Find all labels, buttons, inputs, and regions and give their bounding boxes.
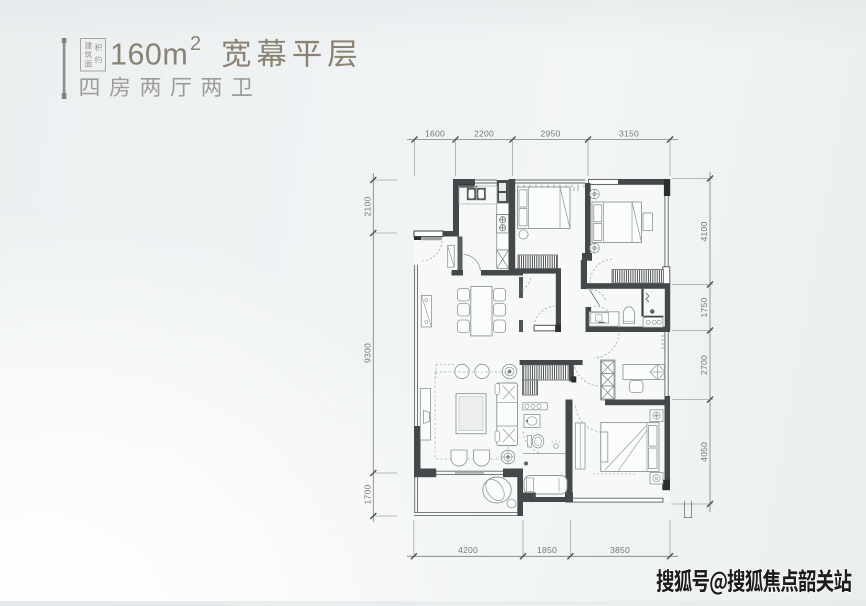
svg-text:1850: 1850: [537, 545, 557, 555]
svg-text:2950: 2950: [541, 129, 561, 139]
svg-text:3150: 3150: [619, 129, 639, 139]
svg-text:3850: 3850: [610, 545, 630, 555]
svg-text:2700: 2700: [699, 355, 709, 375]
svg-text:1750: 1750: [699, 298, 709, 318]
svg-text:2: 2: [190, 33, 201, 55]
svg-text:4200: 4200: [458, 545, 478, 555]
svg-text:1700: 1700: [362, 485, 372, 505]
svg-text:4100: 4100: [699, 222, 709, 242]
svg-text:4050: 4050: [699, 442, 709, 462]
svg-text:160m: 160m: [110, 37, 188, 71]
svg-text:9300: 9300: [362, 343, 372, 363]
svg-text:2200: 2200: [474, 129, 494, 139]
svg-text:2100: 2100: [362, 197, 372, 217]
svg-text:1600: 1600: [425, 129, 445, 139]
